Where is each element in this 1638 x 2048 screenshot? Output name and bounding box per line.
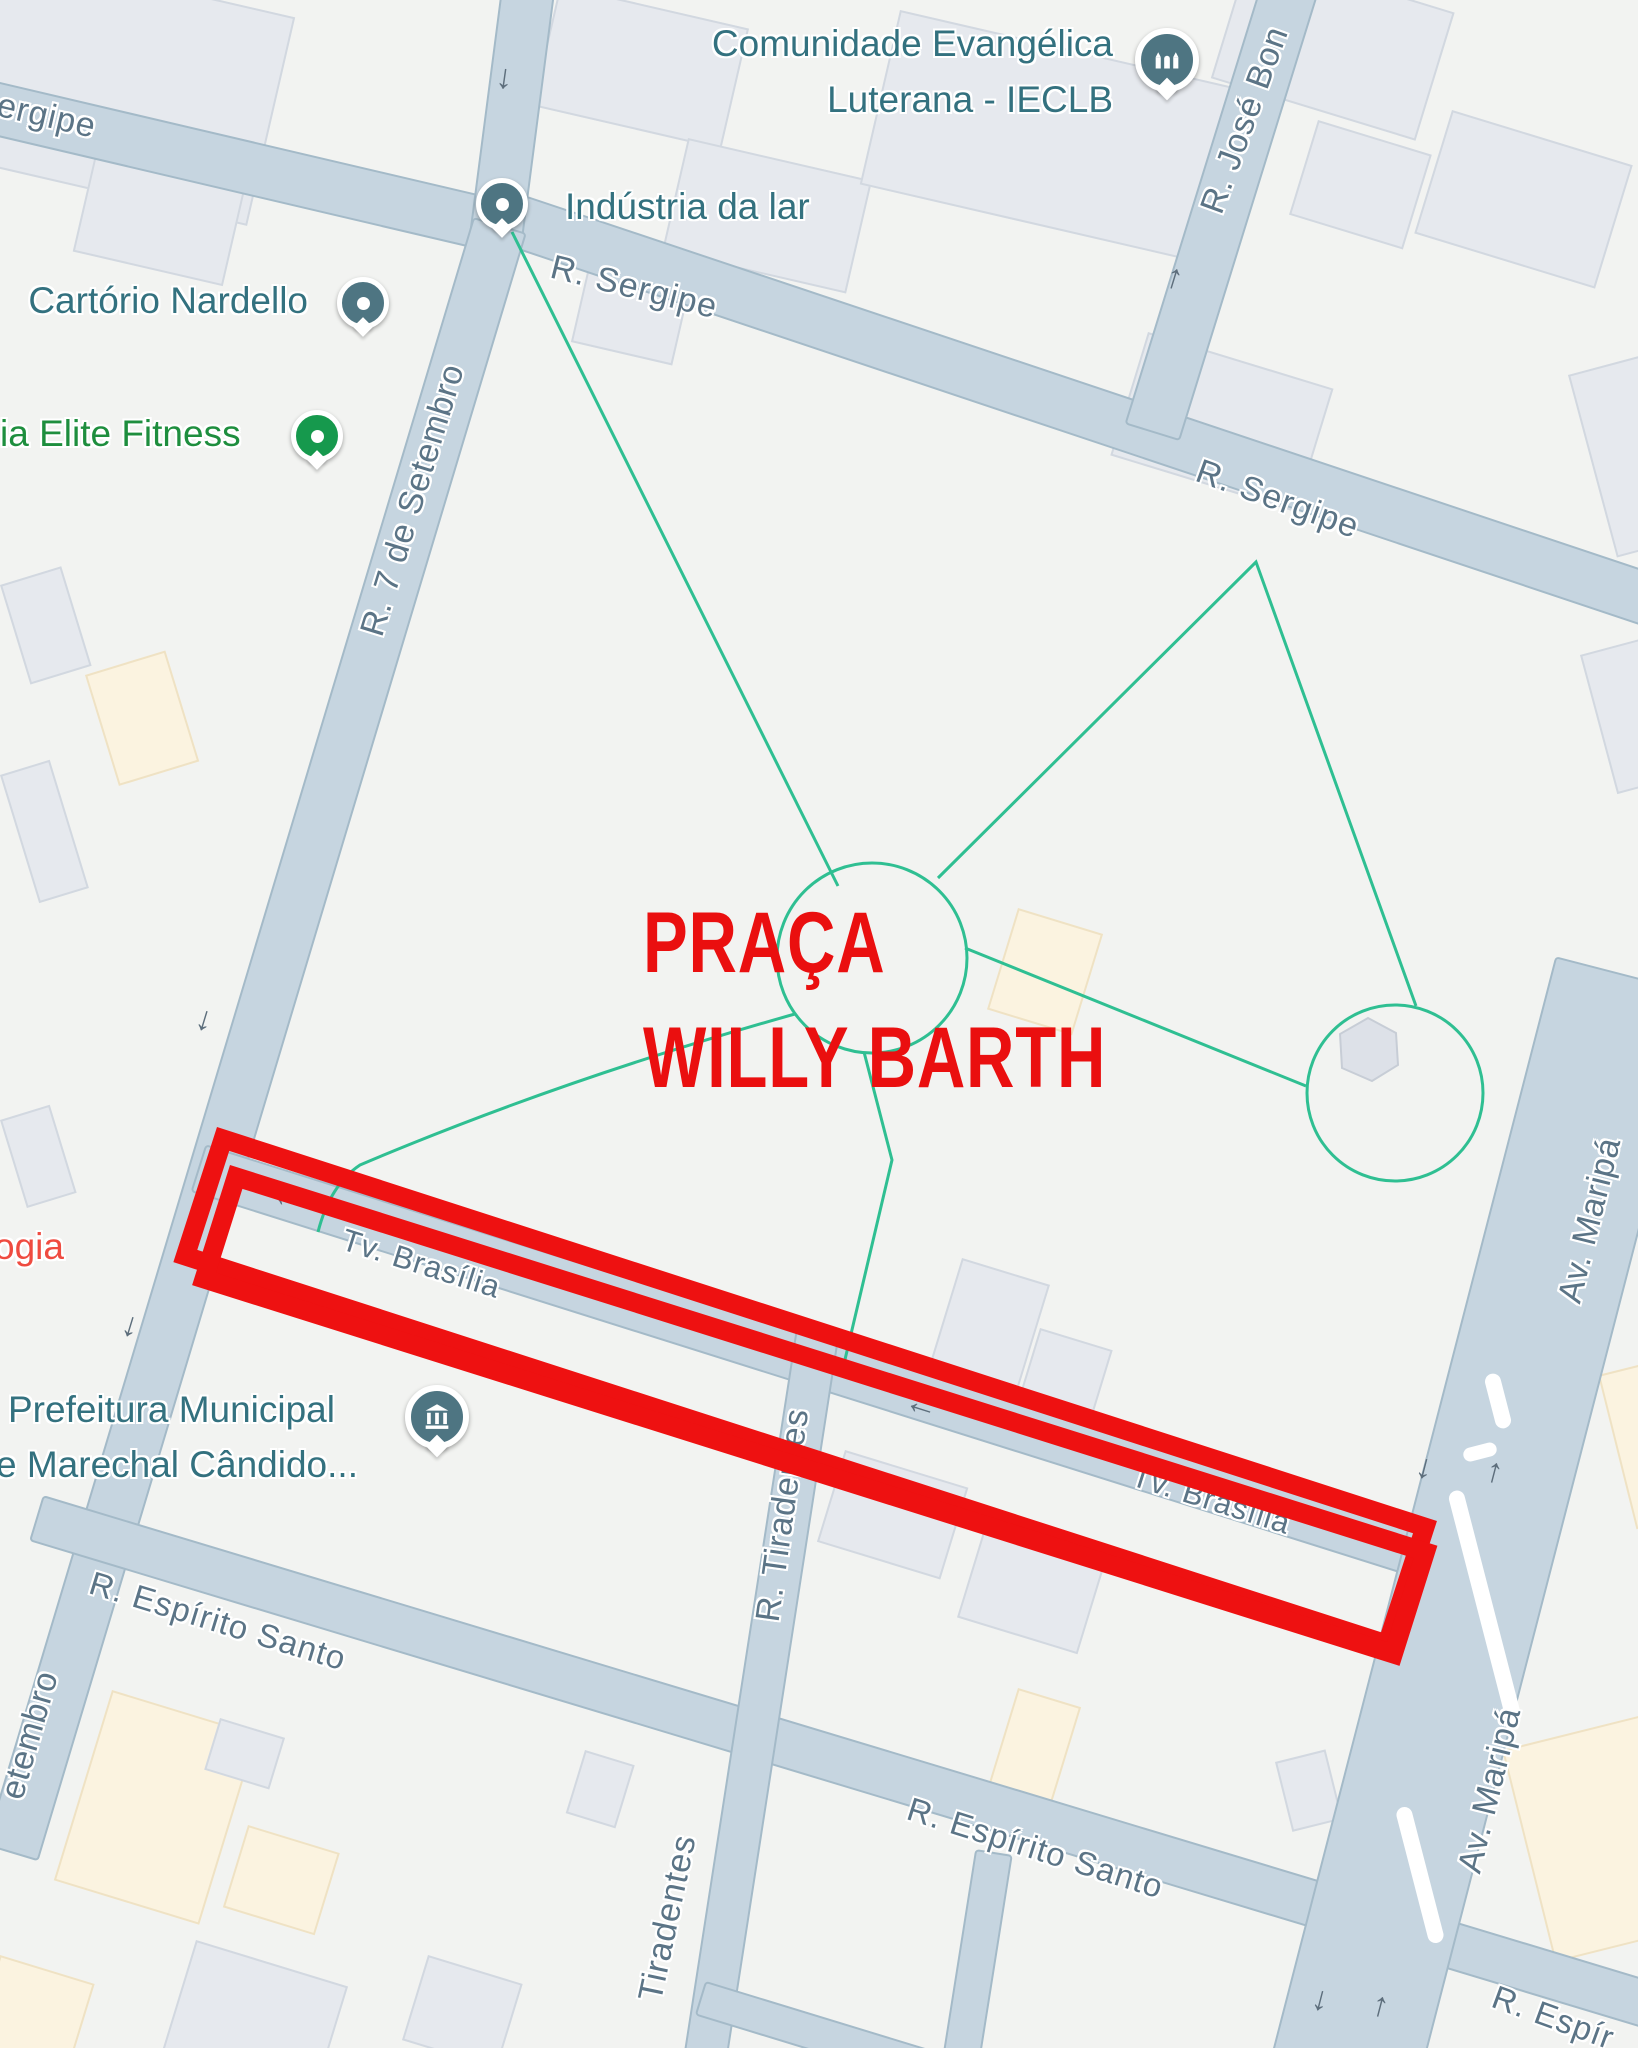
poi-label-comunidade[interactable]: Comunidade Evangélica Luterana - IECLB [655,16,1113,128]
poi-label-comunidade-line1: Comunidade Evangélica [655,16,1113,72]
poi-label-prefeitura-line2: e Marechal Cândido... [0,1437,358,1492]
government-building-icon [420,1400,454,1434]
poi-label-ogia-partial[interactable]: ogia [0,1226,64,1268]
annotation-title: PRAÇA WILLY BARTH [643,886,1106,1116]
poi-label-industria[interactable]: Indústria da lar [565,186,810,228]
poi-label-comunidade-line2: Luterana - IECLB [655,72,1113,128]
park-hexagon [1340,1018,1398,1081]
poi-pin-elite-fitness[interactable] [291,410,343,467]
church-icon [1150,43,1184,77]
poi-label-prefeitura[interactable]: Prefeitura Municipal e Marechal Cândido.… [8,1382,358,1492]
poi-label-prefeitura-line1: Prefeitura Municipal [8,1382,358,1437]
annotation-title-line2: WILLY BARTH [643,1001,1106,1116]
poi-label-elite-fitness[interactable]: ia Elite Fitness [0,413,241,455]
poi-pin-prefeitura[interactable] [405,1385,469,1454]
annotation-title-line1: PRAÇA [643,886,1106,1001]
poi-pin-church[interactable] [1135,28,1199,97]
map-canvas[interactable]: ergipe R. Sergipe R. Sergipe R. 7 de Set… [0,0,1638,2048]
poi-pin-industria[interactable] [476,178,528,235]
poi-pin-cartorio[interactable] [337,277,389,334]
poi-label-cartorio[interactable]: Cartório Nardello [0,280,308,322]
